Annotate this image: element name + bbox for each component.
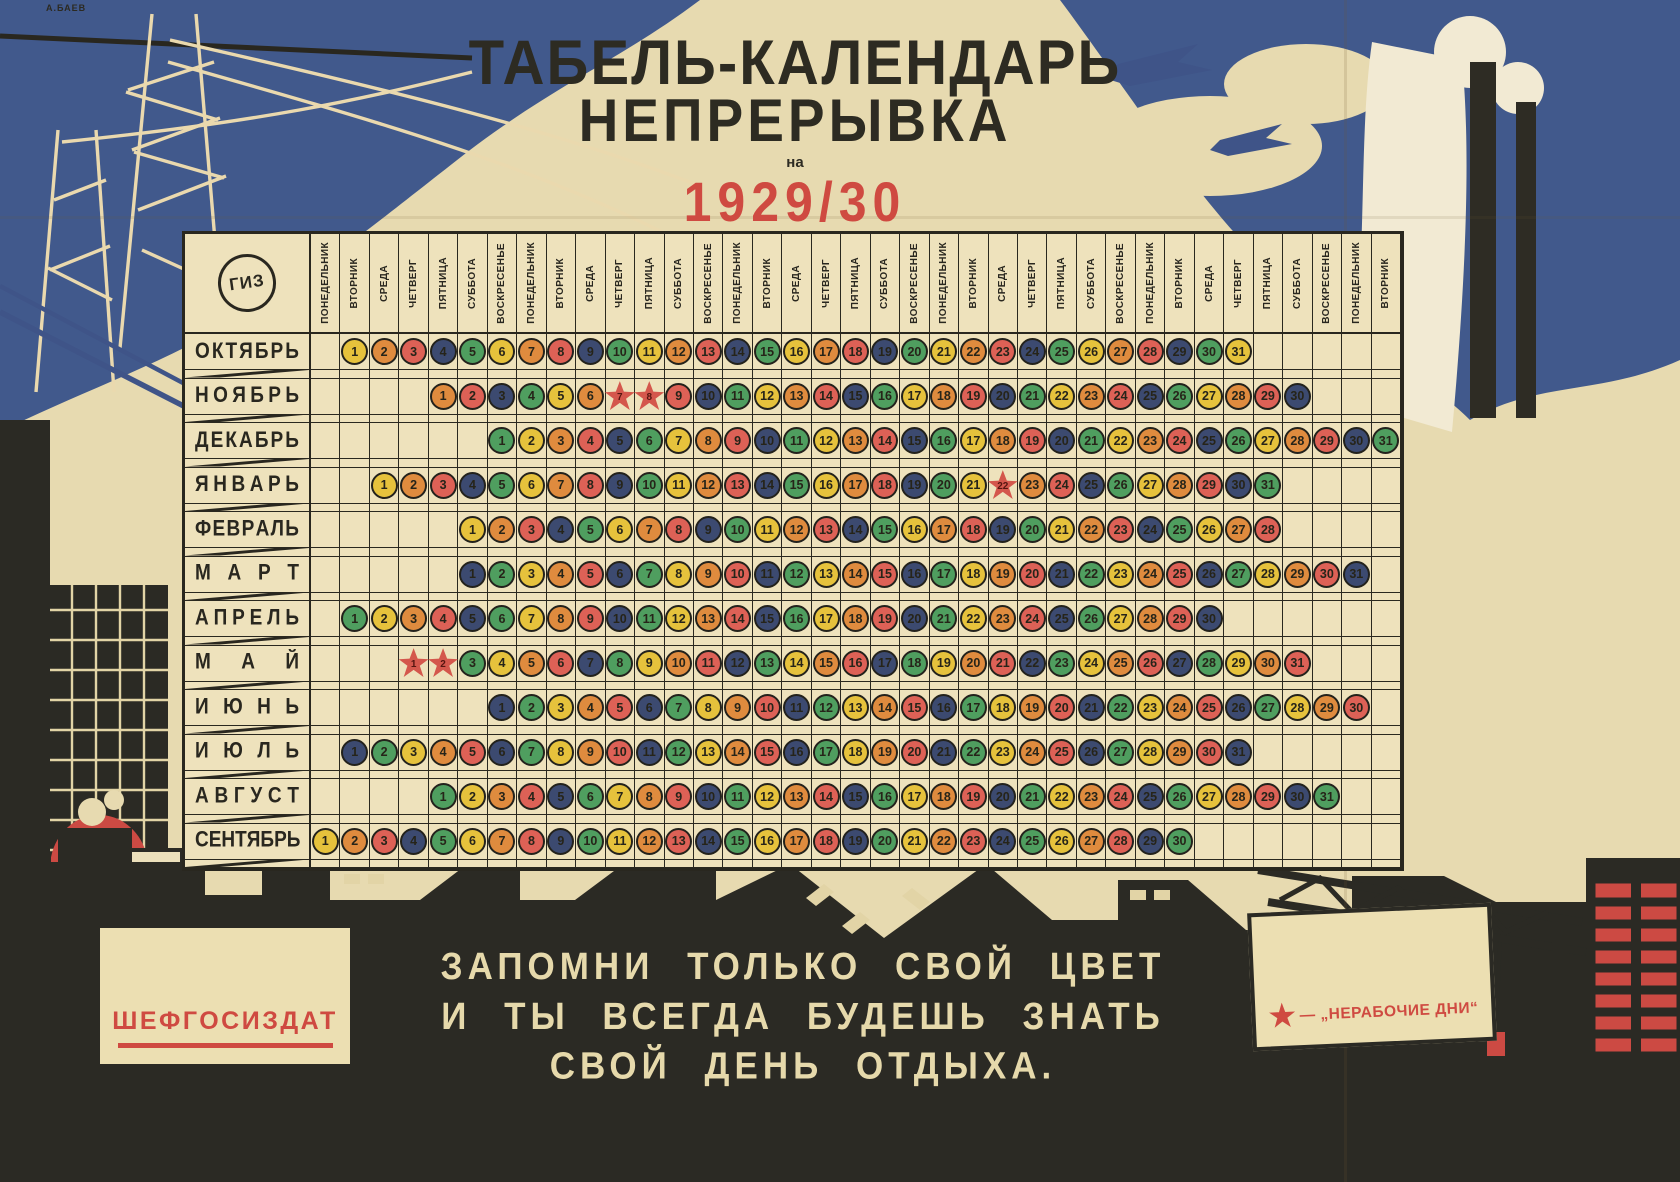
divider-cell [723, 593, 752, 602]
day-cell: 10 [753, 423, 782, 459]
divider-cell [900, 415, 929, 424]
divider-cell [311, 771, 340, 780]
day-circle: 22 [1078, 516, 1105, 543]
day-circle: 1 [459, 561, 486, 588]
day-circle: 7 [518, 338, 545, 365]
day-cell [1372, 735, 1401, 771]
divider-cell [694, 459, 723, 468]
day-circle: 25 [1078, 472, 1105, 499]
weekday-header: ПОНЕДЕЛЬНИК [517, 234, 546, 334]
day-circle: 27 [1225, 561, 1252, 588]
weekday-header: ВТОРНИК [547, 234, 576, 334]
divider-cell [1136, 682, 1165, 691]
day-cell: 9 [576, 334, 605, 370]
day-circle: 18 [901, 650, 928, 677]
day-circle: 16 [842, 650, 869, 677]
weekday-header: ВТОРНИК [340, 234, 369, 334]
divider-cell [1195, 726, 1224, 735]
divider-cell [871, 370, 900, 379]
day-circle: 20 [960, 650, 987, 677]
divider-cell [340, 504, 369, 513]
day-cell: 16 [841, 646, 870, 682]
day-cell [399, 779, 428, 815]
weekday-header: ПЯТНИЦА [841, 234, 870, 334]
day-cell: 16 [782, 334, 811, 370]
day-circle: 6 [488, 605, 515, 632]
day-cell: 3 [399, 735, 428, 771]
day-circle: 31 [1372, 427, 1399, 454]
day-circle: 13 [783, 383, 810, 410]
holiday-star: 2 [428, 648, 459, 679]
day-cell: 11 [782, 423, 811, 459]
divider-cell [694, 415, 723, 424]
divider-cell [1018, 504, 1047, 513]
divider-cell [576, 637, 605, 646]
divider-cell [576, 682, 605, 691]
day-cell: 15 [900, 690, 929, 726]
divider-slash [185, 815, 309, 823]
day-cell: 11 [635, 334, 664, 370]
day-circle: 20 [1048, 427, 1075, 454]
day-circle: 28 [1254, 561, 1281, 588]
day-circle: 10 [724, 516, 751, 543]
day-cell: 26 [1047, 824, 1076, 860]
divider-cell [694, 593, 723, 602]
day-cell: 16 [753, 824, 782, 860]
day-cell: 30 [1313, 557, 1342, 593]
day-cell: 30 [1195, 334, 1224, 370]
day-cell: 27 [1224, 512, 1253, 548]
day-circle: 15 [813, 650, 840, 677]
day-cell: 24 [1165, 690, 1194, 726]
day-cell: 15 [723, 824, 752, 860]
day-cell: 13 [812, 557, 841, 593]
day-cell: 20 [900, 735, 929, 771]
day-circle: 20 [871, 828, 898, 855]
day-circle: 14 [842, 516, 869, 543]
day-cell: 31 [1372, 423, 1401, 459]
day-cell: 17 [812, 334, 841, 370]
day-circle: 10 [636, 472, 663, 499]
divider-cell [1165, 771, 1194, 780]
day-cell: 27 [1106, 334, 1135, 370]
day-cell: 10 [606, 334, 635, 370]
day-cell: 11 [782, 690, 811, 726]
day-cell: 15 [841, 779, 870, 815]
day-circle: 9 [636, 650, 663, 677]
divider-cell [458, 815, 487, 824]
weekday-header: ЧЕТВЕРГ [606, 234, 635, 334]
day-cell [340, 646, 369, 682]
divider-cell [547, 370, 576, 379]
divider-cell [959, 726, 988, 735]
legend-star-icon: ★ [1268, 1001, 1296, 1032]
day-cell: 31 [1313, 779, 1342, 815]
divider-cell [665, 504, 694, 513]
day-circle: 23 [1019, 472, 1046, 499]
day-circle: 19 [871, 739, 898, 766]
day-cell: 11 [606, 824, 635, 860]
day-circle: 15 [842, 783, 869, 810]
day-cell: 4 [547, 512, 576, 548]
divider-cell [989, 771, 1018, 780]
divider-cell [606, 815, 635, 824]
divider-cell [694, 637, 723, 646]
divider-cell [635, 637, 664, 646]
day-circle: 14 [842, 561, 869, 588]
day-circle: 24 [1166, 694, 1193, 721]
day-cell: 10 [635, 468, 664, 504]
divider-cell [547, 593, 576, 602]
divider-cell [1136, 504, 1165, 513]
divider-cell [930, 593, 959, 602]
divider-cell [1165, 370, 1194, 379]
day-circle: 21 [1078, 694, 1105, 721]
divider-cell [1283, 504, 1312, 513]
divider-cell [1342, 682, 1371, 691]
day-circle: 1 [341, 605, 368, 632]
day-circle: 2 [371, 605, 398, 632]
day-cell [340, 779, 369, 815]
divider-cell [1077, 771, 1106, 780]
day-cell [1313, 334, 1342, 370]
divider-cell [488, 504, 517, 513]
day-cell: 23 [1106, 557, 1135, 593]
divider-slash [185, 726, 309, 734]
title-preposition: на [410, 154, 1180, 171]
day-cell: 1 [429, 379, 458, 415]
divider-cell [665, 637, 694, 646]
day-cell: 21 [959, 468, 988, 504]
divider-cell [930, 370, 959, 379]
divider-cell [812, 860, 841, 869]
day-circle: 18 [842, 338, 869, 365]
day-cell: 8 [517, 824, 546, 860]
day-cell: 23 [1077, 779, 1106, 815]
divider-cell [1313, 415, 1342, 424]
day-circle: 8 [695, 427, 722, 454]
day-circle: 21 [1019, 383, 1046, 410]
weekday-label: ВОСКРЕСЕНЬЕ [909, 243, 920, 324]
day-circle: 21 [930, 739, 957, 766]
day-cell [311, 557, 340, 593]
day-cell [1224, 601, 1253, 637]
day-circle: 7 [577, 650, 604, 677]
giz-publisher-logo: ГИЗ [214, 250, 280, 316]
day-circle: 14 [724, 605, 751, 632]
divider-cell [488, 637, 517, 646]
day-cell: 21 [930, 735, 959, 771]
month-divider [185, 370, 311, 379]
day-cell: 24 [1136, 557, 1165, 593]
day-cell: 9 [576, 735, 605, 771]
day-cell: 6 [458, 824, 487, 860]
month-label: МАЙ [185, 646, 311, 682]
divider-cell [723, 370, 752, 379]
divider-cell [311, 815, 340, 824]
divider-cell [1224, 682, 1253, 691]
day-cell: 30 [1342, 423, 1371, 459]
divider-slash [185, 459, 309, 467]
day-circle: 25 [1137, 383, 1164, 410]
day-circle: 26 [1225, 694, 1252, 721]
divider-cell [488, 860, 517, 869]
day-circle: 31 [1254, 472, 1281, 499]
day-circle: 17 [813, 739, 840, 766]
day-cell: 18 [930, 779, 959, 815]
divider-cell [1254, 771, 1283, 780]
divider-cell [989, 504, 1018, 513]
day-circle: 2 [400, 472, 427, 499]
divider-cell [900, 459, 929, 468]
divider-cell [429, 637, 458, 646]
weekday-header: ВОСКРЕСЕНЬЕ [1313, 234, 1342, 334]
day-circle: 23 [1078, 383, 1105, 410]
divider-cell [517, 815, 546, 824]
divider-cell [517, 459, 546, 468]
day-circle: 11 [724, 383, 751, 410]
divider-cell [547, 771, 576, 780]
day-cell [1313, 735, 1342, 771]
divider-cell [1047, 815, 1076, 824]
divider-cell [429, 860, 458, 869]
day-cell: 1 [311, 824, 340, 860]
divider-cell [399, 548, 428, 557]
day-circle: 20 [1048, 694, 1075, 721]
day-cell: 20 [900, 601, 929, 637]
day-circle: 15 [842, 383, 869, 410]
day-cell: 5 [576, 557, 605, 593]
day-cell: 17 [841, 468, 870, 504]
day-circle: 26 [1107, 472, 1134, 499]
divider-cell [1254, 682, 1283, 691]
day-circle: 12 [665, 605, 692, 632]
divider-cell [576, 815, 605, 824]
day-circle: 15 [783, 472, 810, 499]
day-circle: 8 [665, 561, 692, 588]
divider-cell [399, 370, 428, 379]
day-cell: 15 [753, 334, 782, 370]
divider-cell [665, 459, 694, 468]
divider-cell [841, 459, 870, 468]
divider-cell [1313, 771, 1342, 780]
divider-cell [370, 815, 399, 824]
day-cell: 23 [959, 824, 988, 860]
day-circle: 12 [665, 338, 692, 365]
divider-cell [1136, 637, 1165, 646]
divider-cell [900, 815, 929, 824]
slogan-line-2: И ТЫ ВСЕГДА БУДЕШЬ ЗНАТЬ [408, 992, 1198, 1042]
divider-cell [370, 771, 399, 780]
day-cell [429, 557, 458, 593]
divider-slash [185, 593, 309, 601]
day-circle: 5 [606, 694, 633, 721]
divider-cell [517, 593, 546, 602]
divider-cell [782, 504, 811, 513]
divider-cell [1165, 593, 1194, 602]
day-cell [429, 423, 458, 459]
divider-cell [576, 860, 605, 869]
day-cell: 9 [694, 557, 723, 593]
day-circle: 6 [488, 338, 515, 365]
weekday-label: ВОСКРЕСЕНЬЕ [703, 243, 714, 324]
day-cell: 25 [1195, 423, 1224, 459]
divider-cell [606, 682, 635, 691]
day-circle: 18 [842, 605, 869, 632]
day-circle: 10 [665, 650, 692, 677]
divider-cell [900, 370, 929, 379]
divider-cell [1254, 593, 1283, 602]
divider-cell [871, 415, 900, 424]
divider-cell [340, 548, 369, 557]
divider-cell [458, 771, 487, 780]
divider-cell [635, 504, 664, 513]
day-circle: 17 [813, 338, 840, 365]
day-cell: 18 [989, 423, 1018, 459]
divider-cell [1372, 370, 1401, 379]
day-cell: 18 [841, 735, 870, 771]
day-circle: 13 [813, 561, 840, 588]
weekday-header: СУББОТА [1077, 234, 1106, 334]
weekday-header: ПОНЕДЕЛЬНИК [311, 234, 340, 334]
day-cell: 9 [723, 423, 752, 459]
building-base [1554, 1060, 1680, 1182]
divider-cell [1254, 548, 1283, 557]
day-cell: 28 [1224, 779, 1253, 815]
divider-cell [311, 459, 340, 468]
divider-cell [1342, 504, 1371, 513]
day-circle: 25 [1048, 338, 1075, 365]
day-cell: 19 [930, 646, 959, 682]
day-circle: 8 [636, 783, 663, 810]
day-circle: 24 [1078, 650, 1105, 677]
day-circle: 4 [577, 427, 604, 454]
day-cell: 2 [517, 690, 546, 726]
divider-cell [635, 815, 664, 824]
divider-cell [989, 370, 1018, 379]
day-circle: 5 [547, 783, 574, 810]
day-cell: 10 [606, 735, 635, 771]
divider-cell [1372, 682, 1401, 691]
day-circle: 16 [930, 427, 957, 454]
divider-cell [1195, 637, 1224, 646]
day-circle: 21 [1048, 516, 1075, 543]
day-circle: 26 [1078, 739, 1105, 766]
day-cell [1372, 557, 1401, 593]
day-circle: 9 [724, 427, 751, 454]
day-cell: 18 [841, 334, 870, 370]
day-circle: 19 [1019, 427, 1046, 454]
day-cell [340, 690, 369, 726]
weekday-header: ПОНЕДЕЛЬНИК [723, 234, 752, 334]
divider-cell [1313, 504, 1342, 513]
weekday-header: ПЯТНИЦА [635, 234, 664, 334]
divider-cell [635, 682, 664, 691]
day-circle: 27 [1107, 605, 1134, 632]
divider-cell [1106, 682, 1135, 691]
day-cell: 24 [1106, 379, 1135, 415]
divider-cell [1342, 370, 1371, 379]
divider-cell [606, 548, 635, 557]
month-label: ЯНВАРЬ [185, 468, 311, 504]
day-circle: 27 [1078, 828, 1105, 855]
day-circle: 29 [1284, 561, 1311, 588]
day-circle: 4 [518, 383, 545, 410]
day-cell: 27 [1254, 690, 1283, 726]
divider-cell [311, 415, 340, 424]
day-cell: 20 [1018, 557, 1047, 593]
day-circle: 9 [695, 561, 722, 588]
weekday-header: ПОНЕДЕЛЬНИК [930, 234, 959, 334]
day-cell: 9 [576, 601, 605, 637]
divider-cell [576, 726, 605, 735]
day-circle: 30 [1196, 338, 1223, 365]
divider-cell [753, 771, 782, 780]
day-circle: 23 [1107, 516, 1134, 543]
day-circle: 17 [960, 427, 987, 454]
day-circle: 24 [1137, 561, 1164, 588]
day-circle: 23 [1137, 427, 1164, 454]
month-divider [185, 815, 311, 824]
day-cell [458, 423, 487, 459]
day-cell: 16 [900, 512, 929, 548]
day-cell: 22 [930, 824, 959, 860]
divider-cell [841, 726, 870, 735]
day-cell: 12 [812, 423, 841, 459]
day-cell [311, 646, 340, 682]
divider-cell [1254, 860, 1283, 869]
day-cell: 30 [1224, 468, 1253, 504]
day-cell: 2 [370, 601, 399, 637]
divider-cell [1018, 415, 1047, 424]
divider-cell [782, 637, 811, 646]
day-cell [311, 512, 340, 548]
day-cell: 1 [340, 334, 369, 370]
day-cell: 12 [665, 735, 694, 771]
divider-cell [782, 860, 811, 869]
day-circle: 22 [960, 338, 987, 365]
day-cell [1372, 379, 1401, 415]
day-circle: 25 [1019, 828, 1046, 855]
day-circle: 3 [518, 516, 545, 543]
day-cell: 14 [753, 468, 782, 504]
divider-cell [576, 593, 605, 602]
day-cell: 20 [1018, 512, 1047, 548]
day-circle: 3 [400, 338, 427, 365]
day-cell: 24 [1018, 601, 1047, 637]
day-cell: 27 [1195, 779, 1224, 815]
month-divider [185, 415, 311, 424]
day-cell: 3 [399, 601, 428, 637]
divider-cell [1283, 860, 1312, 869]
divider-cell [1342, 415, 1371, 424]
divider-slash [185, 370, 309, 378]
weekday-label: ПОНЕДЕЛЬНИК [732, 242, 743, 324]
day-circle: 17 [871, 650, 898, 677]
divider-cell [959, 815, 988, 824]
slogan-line-1: ЗАПОМНИ ТОЛЬКО СВОЙ ЦВЕТ [408, 942, 1198, 992]
day-circle: 20 [989, 383, 1016, 410]
day-circle: 5 [488, 472, 515, 499]
day-cell: 20 [959, 646, 988, 682]
day-cell [1283, 334, 1312, 370]
divider-cell [1372, 415, 1401, 424]
weekday-label: ПОНЕДЕЛЬНИК [526, 242, 537, 324]
day-circle: 21 [989, 650, 1016, 677]
day-cell: 17 [812, 601, 841, 637]
divider-cell [1195, 815, 1224, 824]
day-cell [370, 557, 399, 593]
